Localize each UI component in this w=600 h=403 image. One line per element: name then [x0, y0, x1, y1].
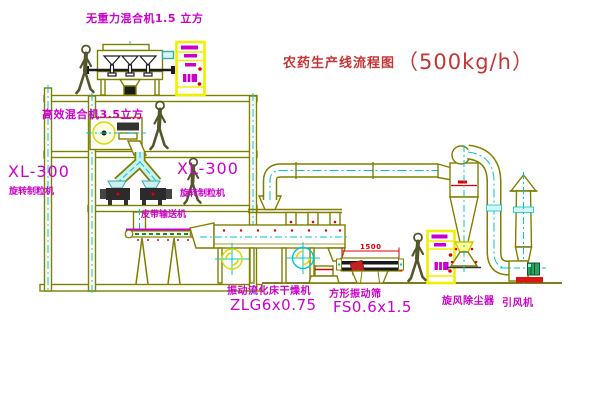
gravity-mixer-label: 无重力混合机1.5 立方 [86, 13, 203, 24]
floor-beam-mid [44, 152, 257, 158]
belt-conveyor [125, 230, 198, 285]
granulator-right [140, 181, 172, 205]
floor-beam-top [44, 96, 257, 102]
exhaust-duct-1 [270, 162, 438, 200]
mixer1-hopper [120, 80, 140, 87]
pesticide-line-flow-diagram: 农药生产线流程图 （500kg/h） 无重力混合机1.5 立方 高效混合机3.5… [0, 0, 600, 403]
belt-conveyor-label: 皮带输送机 [141, 211, 186, 220]
granulator-right-model-label: XL-300 [177, 161, 239, 177]
sieve-width-dimension: 1500 [360, 243, 381, 251]
granulator-left-model-label: XL-300 [8, 164, 70, 180]
person-figure [151, 102, 168, 150]
belt-legs [136, 238, 180, 284]
sieve-model-label: FS0.6x1.5 [333, 300, 412, 315]
high-efficiency-mixer [86, 118, 146, 156]
mixer1-side-port [163, 52, 174, 59]
fan-label: 引风机 [502, 299, 534, 309]
control-cabinet-2 [428, 231, 455, 283]
gravity-free-mixer [85, 41, 175, 95]
granulator-left-name-label: 旋转制粒机 [9, 188, 54, 197]
person-figure [409, 234, 426, 282]
sieve-base [352, 271, 388, 283]
fan-base [516, 277, 543, 283]
dryer-model-label: ZLG6x0.75 [230, 298, 317, 313]
control-cabinet-1 [177, 42, 205, 95]
mixer1-discharge [124, 86, 136, 95]
dryer-feed-chute [190, 223, 214, 248]
granulator-left [100, 181, 130, 205]
vibrating-sieve [337, 248, 404, 284]
title-capacity: （500kg/h） [397, 46, 534, 76]
mixer1-paddles [104, 56, 156, 76]
granulator-right-name-label: 旋转制粒机 [180, 190, 225, 199]
title-text: 农药生产线流程图 [283, 52, 395, 71]
diagram-title: 农药生产线流程图 （500kg/h） [283, 46, 534, 76]
dryer-ports [286, 213, 340, 226]
cyclone-outlet-elbow [452, 146, 470, 164]
cyclone-label: 旋风除尘器 [442, 297, 495, 307]
high-eff-mixer-label: 高效混合机3.5立方 [42, 109, 144, 120]
